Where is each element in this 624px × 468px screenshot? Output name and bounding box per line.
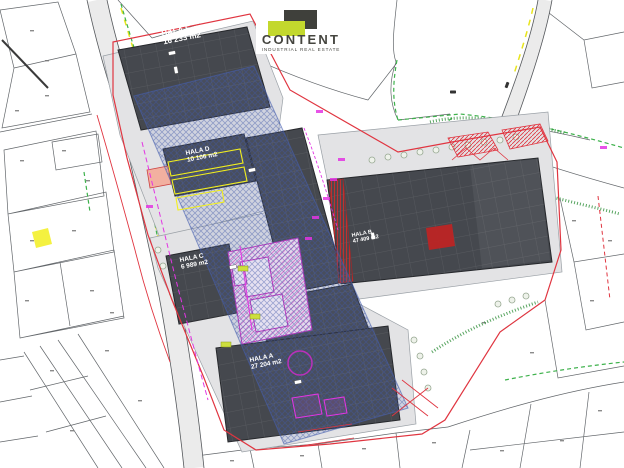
logo: CONTENT INDUSTRIAL REAL ESTATE xyxy=(256,4,348,54)
brand-tagline: INDUSTRIAL REAL ESTATE xyxy=(262,47,341,52)
red-marked-unit xyxy=(426,224,455,250)
site-plan-map: HALA E16 233 m2 HALA D10 106 m2 HALA C6 … xyxy=(0,0,624,468)
brand-name: CONTENT xyxy=(262,32,340,47)
site-plan-page: HALA E16 233 m2 HALA D10 106 m2 HALA C6 … xyxy=(0,0,624,468)
car-icon xyxy=(450,91,456,94)
hall-b-building xyxy=(327,158,552,284)
